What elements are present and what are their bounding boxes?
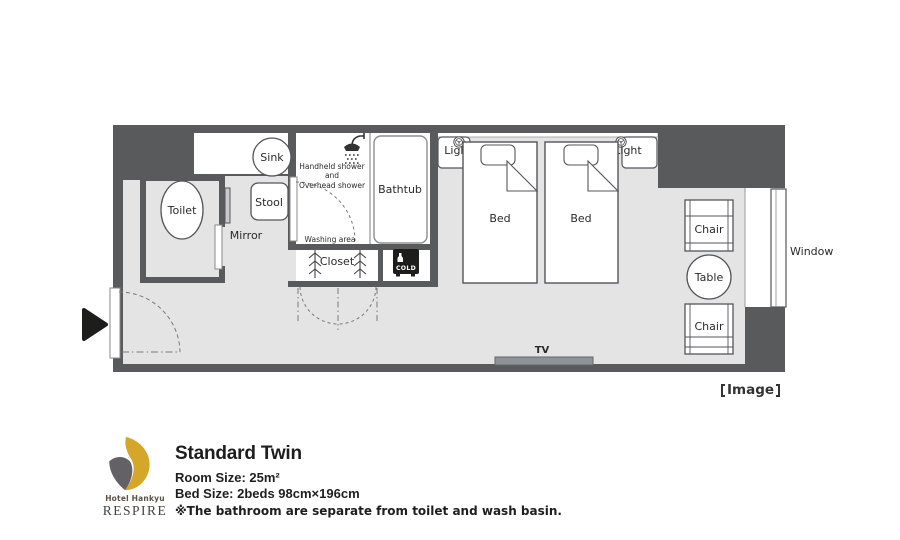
window-label: Window	[790, 245, 833, 258]
mirror-label: Mirror	[230, 229, 263, 242]
bed-right-label: Bed	[570, 212, 591, 225]
sink-label: Sink	[260, 151, 284, 164]
logo-mark-icon	[99, 436, 155, 492]
table-label: Table	[694, 271, 724, 284]
window	[771, 189, 786, 307]
right-lenticular-bracket	[776, 384, 780, 397]
bathroom-note: ※The bathroom are separate from toilet a…	[175, 504, 562, 519]
washing-area-label: Washing area	[305, 235, 356, 244]
tv-label: TV	[535, 345, 550, 356]
fridge: COLD	[393, 249, 419, 277]
bed-left: Bed	[463, 142, 537, 283]
window-side-area	[745, 188, 772, 307]
chair-bottom: Chair	[685, 304, 733, 354]
entrance-door	[110, 288, 120, 358]
room-info: Standard Twin Room Size: 25m² Bed Size: …	[175, 443, 562, 519]
stool-label: Stool	[255, 196, 283, 209]
pillow	[481, 145, 515, 165]
mirror	[225, 188, 230, 223]
shower-label-2: and	[325, 171, 339, 180]
entrance-arrow-icon	[84, 310, 106, 339]
page: Toilet Sink Stool Mirror Handheld shower…	[0, 0, 900, 540]
pillow	[564, 145, 598, 165]
left-lenticular-bracket	[721, 384, 725, 397]
chair-top-label: Chair	[695, 223, 724, 236]
washing-door	[290, 177, 297, 241]
tv	[495, 357, 593, 365]
room-name: Standard Twin	[175, 443, 562, 465]
image-caption-text: Image	[727, 382, 774, 398]
fridge-label: COLD	[396, 265, 416, 272]
bathtub-label: Bathtub	[378, 183, 422, 196]
chair-top: Chair	[685, 200, 733, 251]
room-size: Room Size: 25m²	[175, 470, 562, 486]
toilet-door	[215, 225, 222, 269]
bed-size: Bed Size: 2beds 98cm×196cm	[175, 486, 562, 502]
shower-label-1: Handheld shower	[299, 162, 365, 171]
bed-right: Bed	[545, 142, 618, 283]
logo-hotel-text: Hotel Hankyu	[99, 494, 171, 503]
toilet-label: Toilet	[167, 204, 197, 217]
shower-label-3: Overhead shower	[299, 181, 366, 190]
hotel-logo: Hotel Hankyu RESPIRE	[99, 436, 171, 519]
image-caption: Image	[721, 382, 780, 398]
closet-label: Closet	[320, 255, 355, 268]
chair-bottom-label: Chair	[695, 320, 724, 333]
bed-left-label: Bed	[489, 212, 510, 225]
logo-brand-name: RESPIRE	[99, 503, 171, 519]
floor-plan: Toilet Sink Stool Mirror Handheld shower…	[0, 0, 900, 425]
